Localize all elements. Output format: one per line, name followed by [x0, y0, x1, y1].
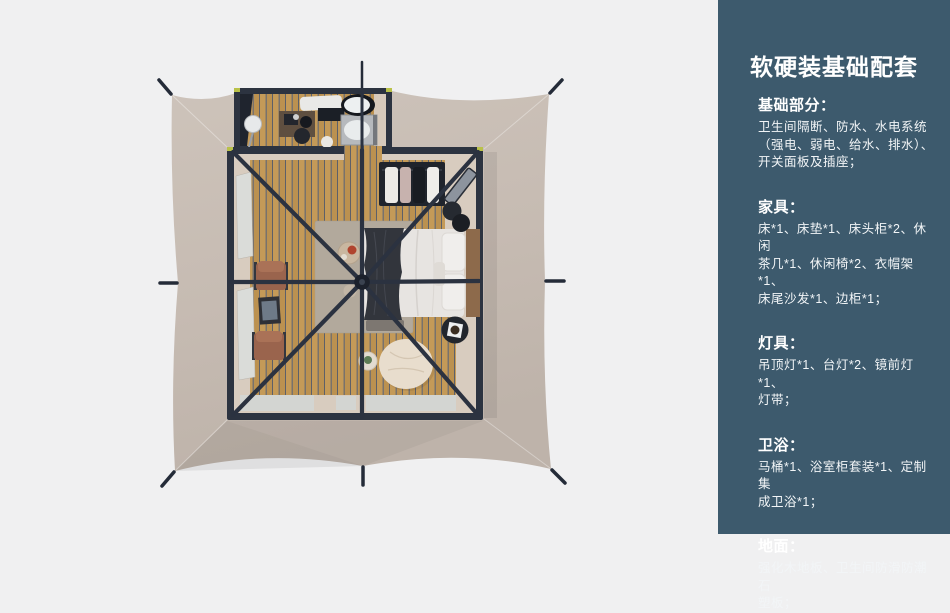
annex-corner-mark-left [234, 88, 240, 92]
section-furniture-heading: 家具： [758, 196, 934, 217]
console-table [258, 296, 281, 324]
frame-hub [354, 274, 370, 290]
side-table-black [442, 317, 469, 344]
bathroom-counter [318, 108, 344, 121]
window-bottom-3 [366, 395, 456, 411]
section-flooring-heading: 地面： [758, 535, 934, 556]
floor-mat [321, 136, 333, 148]
shower-unit [341, 115, 377, 145]
toilet [341, 94, 375, 116]
desk-chair [294, 128, 310, 144]
section-flooring: 地面： 强化木地板、卫生间防滑防潮石 塑板； [758, 535, 934, 613]
spec-sections: 基础部分： 卫生间隔断、防水、水电系统 （强电、弱电、给水、排水）、 开关面板及… [718, 82, 950, 613]
armchair-1 [254, 261, 288, 290]
window-bottom-2 [336, 396, 356, 410]
stake-bottom-left [162, 472, 174, 486]
section-lighting-heading: 灯具： [758, 332, 934, 353]
panel-title: 软硬装基础配套 [718, 48, 950, 82]
section-basics: 基础部分： 卫生间隔断、防水、水电系统 （强电、弱电、给水、排水）、 开关面板及… [758, 94, 934, 172]
bathroom-annex [234, 88, 392, 152]
armchair-2 [252, 331, 286, 360]
slide: 软硬装基础配套 基础部分： 卫生间隔断、防水、水电系统 （强电、弱电、给水、排水… [0, 0, 950, 534]
tent-floorplan-render [0, 0, 718, 534]
section-flooring-body: 强化木地板、卫生间防滑防潮石 塑板； [758, 560, 934, 613]
section-basics-heading: 基础部分： [758, 94, 934, 115]
section-basics-body: 卫生间隔断、防水、水电系统 （强电、弱电、给水、排水）、 开关面板及插座； [758, 119, 934, 172]
tent-floorplan-svg [0, 0, 718, 534]
section-lighting-body: 吊顶灯*1、台灯*2、镜前灯*1、 灯带； [758, 357, 934, 410]
annex-corner-mark-right [386, 88, 392, 92]
section-bathroom-body: 马桶*1、浴室柜套装*1、定制集 成卫浴*1； [758, 459, 934, 512]
bed-headboard [466, 229, 480, 317]
window-left-1 [236, 172, 253, 259]
section-lighting: 灯具： 吊顶灯*1、台灯*2、镜前灯*1、 灯带； [758, 332, 934, 410]
stake-bottom-right [552, 470, 565, 483]
stake-top-left [159, 80, 171, 94]
section-bathroom-heading: 卫浴： [758, 434, 934, 455]
canopy-shadow-right-of-room [484, 152, 497, 418]
spec-panel: 软硬装基础配套 基础部分： 卫生间隔断、防水、水电系统 （强电、弱电、给水、排水… [718, 0, 950, 534]
section-furniture: 家具： 床*1、床垫*1、床头柜*2、休闲 茶几*1、休闲椅*2、衣帽架*1、 … [758, 196, 934, 309]
stake-top-right [550, 80, 562, 93]
section-furniture-body: 床*1、床垫*1、床头柜*2、休闲 茶几*1、休闲椅*2、衣帽架*1、 床尾沙发… [758, 221, 934, 309]
section-bathroom: 卫浴： 马桶*1、浴室柜套装*1、定制集 成卫浴*1； [758, 434, 934, 512]
